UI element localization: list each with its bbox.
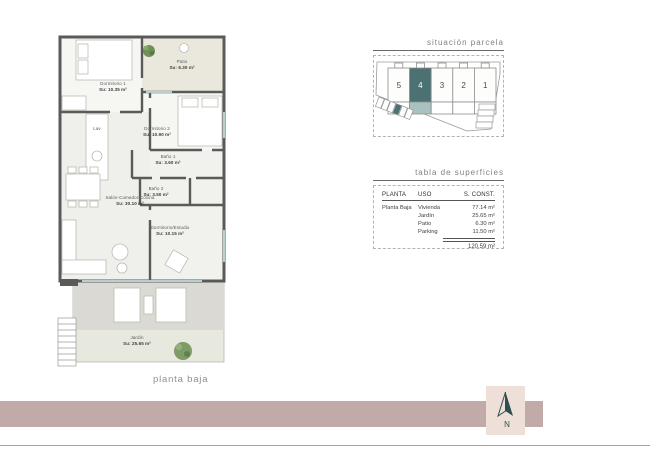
corner-wall	[60, 279, 78, 286]
cell-uso: Parking	[418, 228, 460, 236]
unit-number: 1	[483, 81, 488, 90]
compass-label: N	[504, 420, 510, 429]
surfaces-table: PLANTA USO S. CONST. Planta Baja Viviend…	[373, 185, 504, 249]
north-arrow-icon: N	[486, 386, 525, 435]
total-value: 120.59 m²	[460, 243, 495, 252]
header-rule	[382, 200, 495, 201]
table-row: Patio 6.30 m²	[382, 220, 495, 228]
unit-number: 3	[440, 81, 445, 90]
room-label-salon: Salón-Comedor-Cocina Su: 30.10 m²	[100, 195, 160, 206]
total-separator	[443, 238, 495, 242]
room-name: Lav	[93, 126, 101, 131]
unit-number-highlighted: 4	[418, 81, 423, 90]
room-name: Baño 1	[161, 154, 176, 159]
room-label-lav: Lav	[82, 126, 112, 132]
room-name: Jardín	[130, 335, 143, 340]
plant-icon	[143, 45, 155, 57]
table-row: Planta Baja Vivienda 77.14 m²	[382, 204, 495, 212]
header-sconst: S. CONST.	[460, 191, 495, 199]
dining-table-icon	[66, 167, 100, 207]
surfaces-panel: tabla de superficies PLANTA USO S. CONST…	[373, 168, 504, 249]
table-row: Jardín 25.65 m²	[382, 212, 495, 220]
highlighted-unit-garden	[410, 102, 432, 114]
room-area: Su: 10.35 m²	[83, 87, 143, 93]
study-floor	[150, 150, 224, 281]
room-label-bano1: Baño 1 Su: 3.60 m²	[138, 154, 198, 165]
unit-number: 5	[397, 81, 402, 90]
room-area: Su: 3.60 m²	[138, 160, 198, 166]
cell-sconst: 77.14 m²	[460, 204, 495, 212]
plan-sheet: Dormitorio 1 Su: 10.35 m² Patio Su: 6.30…	[0, 0, 650, 450]
stairs-hatch	[58, 318, 76, 366]
bed-icon	[76, 40, 132, 80]
cell-sconst: 11.50 m²	[460, 228, 495, 236]
parking-column	[476, 104, 495, 128]
tree-icon	[174, 342, 192, 360]
table-row: Parking 11.50 m²	[382, 228, 495, 236]
compass: N	[486, 386, 525, 435]
room-area: Su: 10.15 m²	[140, 231, 200, 237]
surfaces-header-row: PLANTA USO S. CONST.	[382, 191, 495, 199]
cell-uso: Patio	[418, 220, 460, 228]
room-name: Dormitorio 2	[144, 126, 170, 131]
room-area: Su: 30.10 m²	[100, 201, 160, 207]
room-area: Su: 25.65 m²	[107, 341, 167, 347]
room-area: Su: 6.30 m²	[152, 65, 212, 71]
cell-uso: Vivienda	[418, 204, 460, 212]
sink-icon	[92, 151, 102, 161]
bottom-rule	[0, 445, 650, 446]
parcel-svg: 5 4 3 2 1	[374, 56, 503, 134]
patio-table-icon	[180, 44, 189, 53]
room-label-jardin: Jardín Su: 25.65 m²	[107, 335, 167, 346]
cell-sconst: 25.65 m²	[460, 212, 495, 220]
room-label-dormitorio2: Dormitorio 2 Su: 10.90 m²	[127, 126, 187, 137]
cell-planta: Planta Baja	[382, 204, 418, 212]
room-label-dormitorio1: Dormitorio 1 Su: 10.35 m²	[83, 81, 143, 92]
room-label-estudio: Dormitorio/Estudio Su: 10.15 m²	[140, 225, 200, 236]
header-uso: USO	[418, 191, 460, 199]
wardrobe-icon	[62, 96, 86, 110]
parcel-diagram: 5 4 3 2 1	[373, 55, 504, 137]
bed2-icon	[178, 96, 222, 146]
surfaces-title: tabla de superficies	[373, 168, 504, 181]
room-label-patio: Patio Su: 6.30 m²	[152, 59, 212, 70]
footer-band	[0, 401, 543, 427]
total-row: 120.59 m²	[382, 243, 495, 252]
floorplan: Dormitorio 1 Su: 10.35 m² Patio Su: 6.30…	[56, 34, 226, 369]
room-name: Baño 2	[149, 186, 164, 191]
parcel-title: situación parcela	[373, 38, 504, 51]
cell-sconst: 6.30 m²	[460, 220, 495, 228]
room-name: Salón-Comedor-Cocina	[105, 195, 154, 200]
parcel-panel: situación parcela	[373, 38, 504, 137]
room-name: Dormitorio/Estudio	[151, 225, 190, 230]
room-name: Patio	[177, 59, 188, 64]
room-area: Su: 10.90 m²	[127, 132, 187, 138]
cell-uso: Jardín	[418, 212, 460, 220]
plan-caption: planta baja	[153, 374, 208, 385]
unit-number: 2	[461, 81, 466, 90]
room-name: Dormitorio 1	[100, 81, 126, 86]
header-planta: PLANTA	[382, 191, 418, 199]
